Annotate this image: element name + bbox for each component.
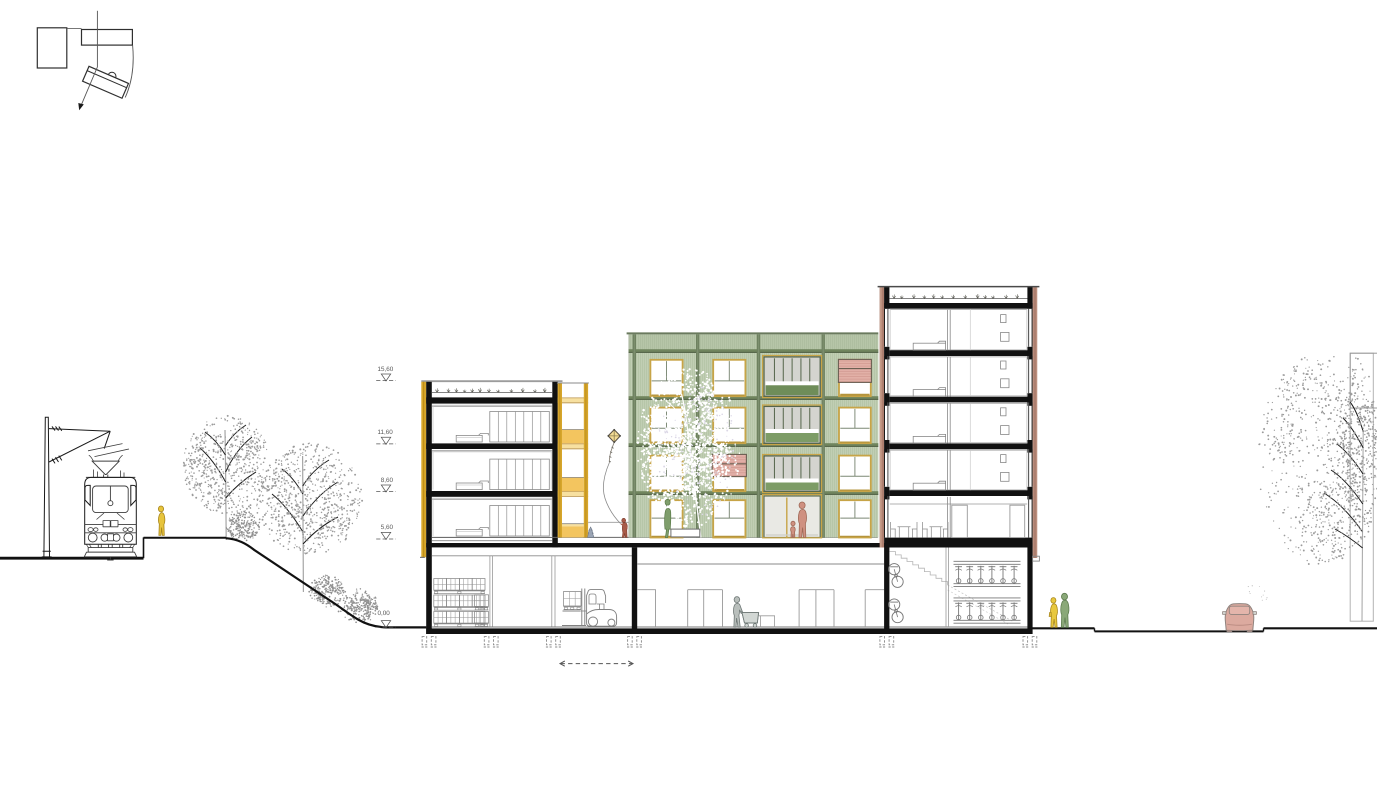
svg-text:11,60: 11,60 [378,429,394,436]
svg-text:15,60: 15,60 [378,366,394,373]
svg-text:5,60: 5,60 [381,524,394,531]
svg-text:8,60: 8,60 [381,477,394,484]
svg-text:0,00: 0,00 [378,610,391,617]
